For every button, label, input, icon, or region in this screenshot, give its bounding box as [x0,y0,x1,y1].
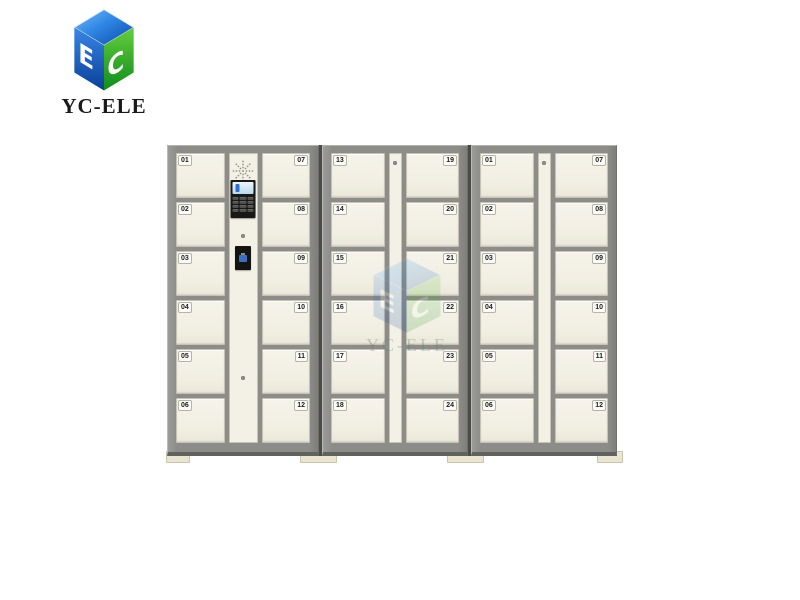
locker-door: 16 [331,300,385,345]
product-photo: YC-ELE 010203040506 07080910111213141516… [0,0,800,600]
locker-door: 12 [555,398,609,443]
divider-column [389,153,402,443]
locker-door: 04 [176,300,225,345]
keypad-key [233,201,239,204]
keypad-key [240,197,246,200]
locker-door: 11 [555,349,609,394]
brand-logo: YC-ELE [38,8,170,119]
speaker-grille-icon [232,160,254,182]
locker-door: 05 [480,349,534,394]
locker-door: 20 [406,202,460,247]
door-number-label: 10 [593,303,605,312]
door-number-label: 09 [593,254,605,263]
door-number-label: 02 [179,205,191,214]
keypad-key [247,197,253,200]
door-column: 192021222324 [406,153,460,443]
qr-scanner [235,246,251,270]
keypad-key [233,205,239,208]
door-number-label: 06 [179,401,191,410]
door-column: 131415161718 [331,153,385,443]
keypad-key [247,201,253,204]
door-column: 070809101112 [262,153,311,443]
locker-door: 01 [480,153,534,198]
locker-door: 15 [331,251,385,296]
door-number-label: 01 [179,156,191,165]
door-number-label: 22 [444,303,456,312]
control-panel [231,180,256,218]
extension-cabinet-1: 131415161718192021222324 [322,145,468,456]
door-number-label: 03 [483,254,495,263]
door-number-label: 16 [334,303,346,312]
locker-door: 08 [555,202,609,247]
door-number-label: 02 [483,205,495,214]
locker-door: 12 [262,398,311,443]
door-number-label: 12 [295,401,307,410]
lock-screw-icon [241,234,245,238]
door-number-label: 21 [444,254,456,263]
locker-door: 13 [331,153,385,198]
door-number-label: 18 [334,401,346,410]
keypad-key [240,209,246,212]
locker-door: 10 [262,300,311,345]
door-number-label: 07 [295,156,307,165]
divider-column [538,153,551,443]
door-number-label: 23 [444,352,456,361]
door-number-label: 15 [334,254,346,263]
door-number-label: 13 [334,156,346,165]
door-number-label: 09 [295,254,307,263]
locker-door: 09 [555,251,609,296]
door-number-label: 08 [295,205,307,214]
door-number-label: 05 [483,352,495,361]
locker-door: 24 [406,398,460,443]
locker-door: 10 [555,300,609,345]
lock-screw-icon [241,376,245,380]
lock-screw-icon [393,161,397,165]
door-number-label: 03 [179,254,191,263]
locker-door: 06 [176,398,225,443]
door-number-label: 08 [593,205,605,214]
main-cabinet: 010203040506 070809101112 [167,145,319,456]
lock-screw-icon [542,161,546,165]
keypad-key [240,201,246,204]
door-number-label: 12 [593,401,605,410]
keypad-key [240,205,246,208]
locker-door: 08 [262,202,311,247]
locker-bank: 010203040506 070809101112131415161718192… [167,145,617,456]
locker-door: 18 [331,398,385,443]
locker-door: 09 [262,251,311,296]
door-number-label: 17 [334,352,346,361]
keypad-key [247,205,253,208]
door-column: 010203040506 [480,153,534,443]
scanner-icon [239,255,247,262]
locker-door: 01 [176,153,225,198]
locker-door: 23 [406,349,460,394]
locker-door: 11 [262,349,311,394]
locker-door: 03 [176,251,225,296]
door-number-label: 14 [334,205,346,214]
door-number-label: 24 [444,401,456,410]
door-number-label: 19 [444,156,456,165]
locker-door: 22 [406,300,460,345]
locker-door: 02 [480,202,534,247]
door-column: 070809101112 [555,153,609,443]
cube-logo-icon [73,8,135,92]
door-column: 010203040506 [176,153,225,443]
locker-door: 17 [331,349,385,394]
locker-door: 07 [555,153,609,198]
locker-door: 03 [480,251,534,296]
locker-door: 07 [262,153,311,198]
door-number-label: 07 [593,156,605,165]
door-number-label: 10 [295,303,307,312]
door-number-label: 01 [483,156,495,165]
lcd-graphic [236,184,240,192]
extension-cabinet-2: 010203040506070809101112 [471,145,617,456]
lcd-screen [233,182,254,194]
keypad-key [233,197,239,200]
locker-door: 04 [480,300,534,345]
locker-door: 05 [176,349,225,394]
keypad-key [233,209,239,212]
door-number-label: 11 [296,352,307,361]
door-number-label: 04 [179,303,191,312]
door-number-label: 20 [444,205,456,214]
locker-door: 14 [331,202,385,247]
locker-door: 06 [480,398,534,443]
control-unit-column [229,153,258,443]
door-number-label: 11 [594,352,605,361]
locker-door: 19 [406,153,460,198]
door-number-label: 04 [483,303,495,312]
locker-door: 21 [406,251,460,296]
door-number-label: 06 [483,401,495,410]
keypad [233,197,254,212]
door-number-label: 05 [179,352,191,361]
keypad-key [247,209,253,212]
brand-name: YC-ELE [38,94,170,119]
locker-door: 02 [176,202,225,247]
